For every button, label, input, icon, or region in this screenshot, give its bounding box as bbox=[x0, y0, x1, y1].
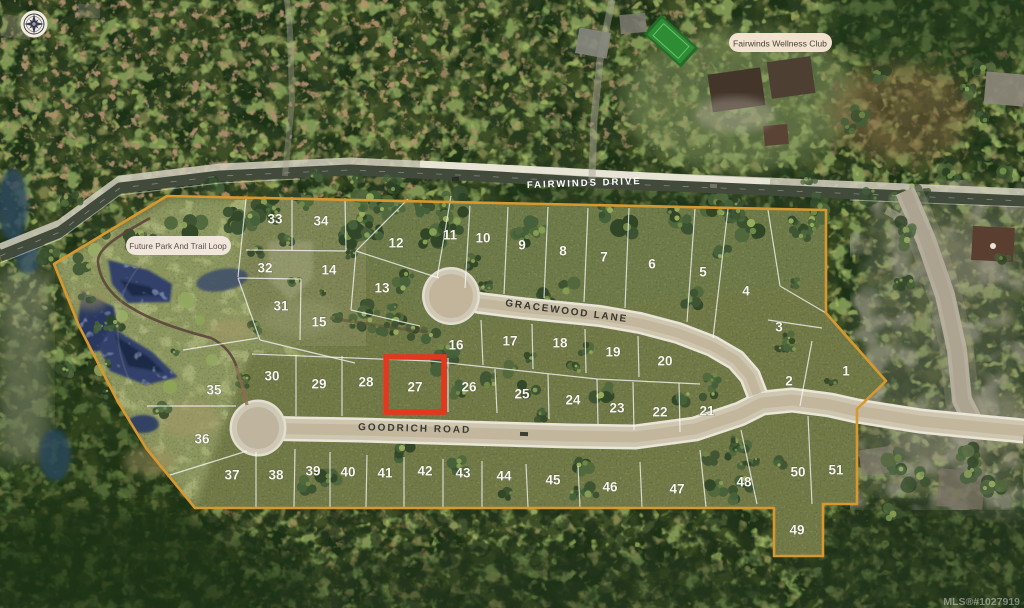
svg-text:22: 22 bbox=[652, 405, 667, 420]
svg-text:40: 40 bbox=[340, 465, 355, 480]
svg-text:21: 21 bbox=[699, 404, 715, 419]
svg-text:33: 33 bbox=[267, 212, 283, 227]
svg-text:4: 4 bbox=[742, 284, 750, 299]
svg-text:12: 12 bbox=[388, 236, 403, 251]
svg-text:Future Park And Trail Loop: Future Park And Trail Loop bbox=[129, 242, 227, 251]
svg-text:6: 6 bbox=[648, 257, 656, 272]
svg-text:26: 26 bbox=[461, 380, 477, 395]
svg-text:47: 47 bbox=[669, 482, 684, 497]
svg-text:24: 24 bbox=[565, 393, 581, 408]
svg-text:18: 18 bbox=[552, 336, 568, 351]
svg-text:25: 25 bbox=[514, 387, 530, 402]
svg-text:1: 1 bbox=[842, 364, 850, 379]
svg-text:37: 37 bbox=[224, 468, 239, 483]
svg-text:46: 46 bbox=[602, 480, 618, 495]
svg-text:43: 43 bbox=[455, 466, 471, 481]
svg-text:49: 49 bbox=[789, 523, 804, 538]
svg-text:Fairwinds Wellness Club: Fairwinds Wellness Club bbox=[733, 39, 827, 49]
svg-text:35: 35 bbox=[206, 383, 222, 398]
svg-text:50: 50 bbox=[790, 465, 805, 480]
svg-text:11: 11 bbox=[443, 228, 458, 243]
svg-text:14: 14 bbox=[321, 263, 337, 278]
svg-text:15: 15 bbox=[311, 315, 327, 330]
svg-text:27: 27 bbox=[407, 380, 422, 395]
svg-text:30: 30 bbox=[264, 369, 279, 384]
svg-text:23: 23 bbox=[609, 401, 625, 416]
svg-text:17: 17 bbox=[502, 334, 517, 349]
svg-text:16: 16 bbox=[448, 338, 464, 353]
svg-text:9: 9 bbox=[518, 238, 526, 253]
svg-text:41: 41 bbox=[377, 466, 393, 481]
svg-text:19: 19 bbox=[605, 345, 620, 360]
svg-text:51: 51 bbox=[828, 463, 844, 478]
svg-text:MLS®#1027919: MLS®#1027919 bbox=[943, 596, 1020, 608]
svg-text:2: 2 bbox=[785, 374, 793, 389]
svg-text:44: 44 bbox=[496, 469, 512, 484]
svg-text:20: 20 bbox=[657, 354, 672, 369]
svg-text:3: 3 bbox=[775, 320, 783, 335]
svg-text:13: 13 bbox=[374, 281, 390, 296]
svg-text:7: 7 bbox=[600, 250, 608, 265]
svg-text:8: 8 bbox=[559, 244, 567, 259]
svg-text:5: 5 bbox=[699, 265, 707, 280]
svg-text:29: 29 bbox=[311, 377, 326, 392]
svg-text:48: 48 bbox=[736, 475, 752, 490]
svg-text:32: 32 bbox=[257, 261, 272, 276]
svg-text:36: 36 bbox=[194, 432, 210, 447]
svg-text:39: 39 bbox=[305, 464, 320, 479]
svg-text:38: 38 bbox=[268, 468, 284, 483]
svg-text:10: 10 bbox=[475, 231, 490, 246]
svg-text:42: 42 bbox=[417, 464, 432, 479]
svg-text:45: 45 bbox=[545, 473, 561, 488]
svg-text:31: 31 bbox=[273, 299, 289, 314]
svg-text:28: 28 bbox=[358, 375, 374, 390]
svg-text:34: 34 bbox=[313, 214, 329, 229]
